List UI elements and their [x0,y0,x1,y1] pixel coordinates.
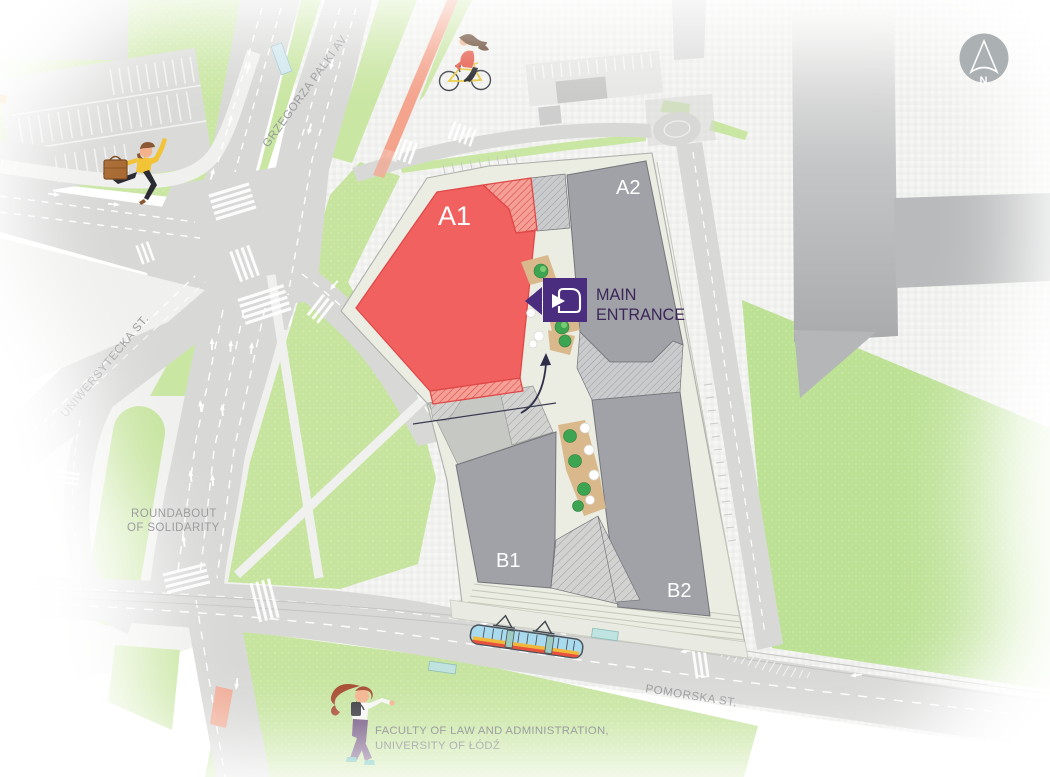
svg-text:A2: A2 [616,177,640,199]
svg-text:B2: B2 [667,580,691,602]
svg-text:OF SOLIDARITY: OF SOLIDARITY [127,522,220,534]
svg-text:ROUNDABOUT: ROUNDABOUT [131,508,217,520]
svg-text:FACULTY OF LAW AND ADMINISTRAT: FACULTY OF LAW AND ADMINISTRATION, [375,725,609,737]
svg-text:N: N [980,75,988,87]
svg-text:B1: B1 [496,550,520,572]
svg-text:A1: A1 [438,201,471,231]
svg-text:MAIN: MAIN [596,286,636,304]
svg-text:ENTRANCE: ENTRANCE [596,306,685,324]
